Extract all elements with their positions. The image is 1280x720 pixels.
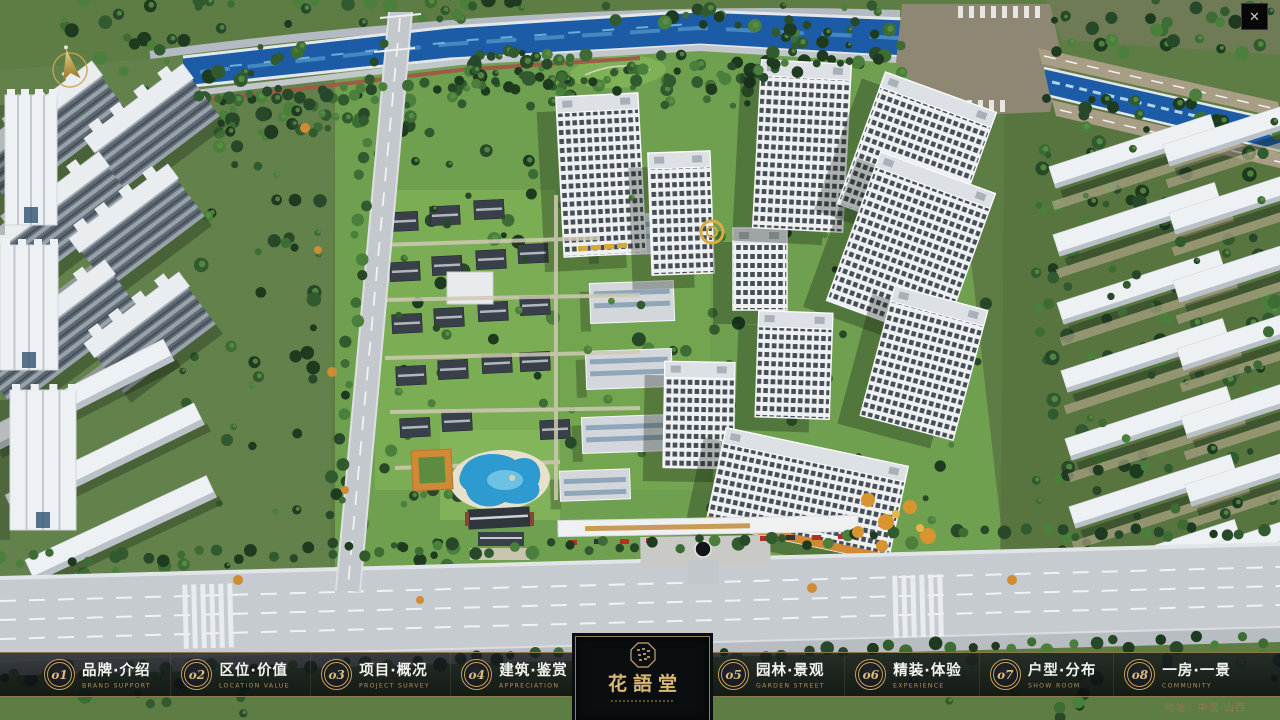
nav-sublabel: PROJECT SURVEY bbox=[359, 682, 430, 689]
orange-roof-building bbox=[411, 449, 453, 491]
brand-seal-icon bbox=[630, 642, 656, 668]
brand-name: 花語堂 bbox=[602, 669, 683, 696]
nav-sublabel: SHOW ROOM bbox=[1028, 682, 1081, 689]
plaza-emblem bbox=[695, 541, 711, 557]
nav-badge: o1 bbox=[44, 659, 75, 690]
nav-label: 项目·概况 bbox=[359, 659, 450, 680]
project-address: 地址：中国·山西 bbox=[1165, 699, 1246, 714]
nav-label: 区位·价值 bbox=[219, 659, 310, 680]
nav-label: 品牌·介绍 bbox=[82, 659, 170, 680]
nav-group-left: o1 品牌·介绍 BRAND SUPPORT o2 区位·价值 LOCATION… bbox=[34, 653, 570, 696]
nav-item-interior[interactable]: o6 精装·体验 EXPERIENCE bbox=[844, 653, 979, 696]
nav-item-garden[interactable]: o5 园林·景观 GARDEN STREET bbox=[708, 653, 844, 696]
nav-sublabel: APPRECIATION bbox=[499, 682, 559, 689]
nav-item-views[interactable]: o8 一房·一景 COMMUNITY bbox=[1113, 653, 1248, 696]
brand-logo-panel[interactable]: 花語堂 bbox=[575, 636, 710, 720]
nav-label: 园林·景观 bbox=[756, 659, 844, 680]
nav-sublabel: BRAND SUPPORT bbox=[82, 682, 151, 689]
nav-sublabel: COMMUNITY bbox=[1162, 682, 1215, 689]
nav-item-architecture[interactable]: o4 建筑·鉴赏 APPRECIATION bbox=[450, 653, 576, 696]
nav-badge: o7 bbox=[990, 659, 1021, 690]
nav-badge: o3 bbox=[321, 659, 352, 690]
nav-sublabel: GARDEN STREET bbox=[756, 682, 825, 689]
nav-label: 精装·体验 bbox=[893, 659, 962, 680]
nav-label: 建筑·鉴赏 bbox=[499, 659, 576, 680]
nav-sublabel: EXPERIENCE bbox=[893, 682, 946, 689]
masterplan-map[interactable] bbox=[0, 0, 1280, 720]
nav-item-brand[interactable]: o1 品牌·介绍 BRAND SUPPORT bbox=[34, 653, 170, 696]
nav-group-right: o5 园林·景观 GARDEN STREET o6 精装·体验 EXPERIEN… bbox=[708, 653, 1248, 696]
nav-label: 户型·分布 bbox=[1028, 659, 1097, 680]
nav-badge: o2 bbox=[181, 659, 212, 690]
nav-badge: o6 bbox=[855, 659, 886, 690]
brand-tagline-line bbox=[611, 700, 675, 702]
nav-item-project[interactable]: o3 项目·概况 PROJECT SURVEY bbox=[310, 653, 450, 696]
nav-badge: o5 bbox=[718, 659, 749, 690]
nav-label: 一房·一景 bbox=[1162, 659, 1231, 680]
nav-item-floorplan[interactable]: o7 户型·分布 SHOW ROOM bbox=[979, 653, 1114, 696]
close-button[interactable]: ✕ bbox=[1241, 3, 1268, 30]
nav-badge: o8 bbox=[1124, 659, 1155, 690]
nav-badge: o4 bbox=[461, 659, 492, 690]
nav-sublabel: LOCATION VALUE bbox=[219, 682, 290, 689]
nav-item-location[interactable]: o2 区位·价值 LOCATION VALUE bbox=[170, 653, 310, 696]
sales-app-window: ✕ o1 品牌·介绍 BRAND SUPPORT o2 区位·价值 LOCATI… bbox=[0, 0, 1280, 720]
